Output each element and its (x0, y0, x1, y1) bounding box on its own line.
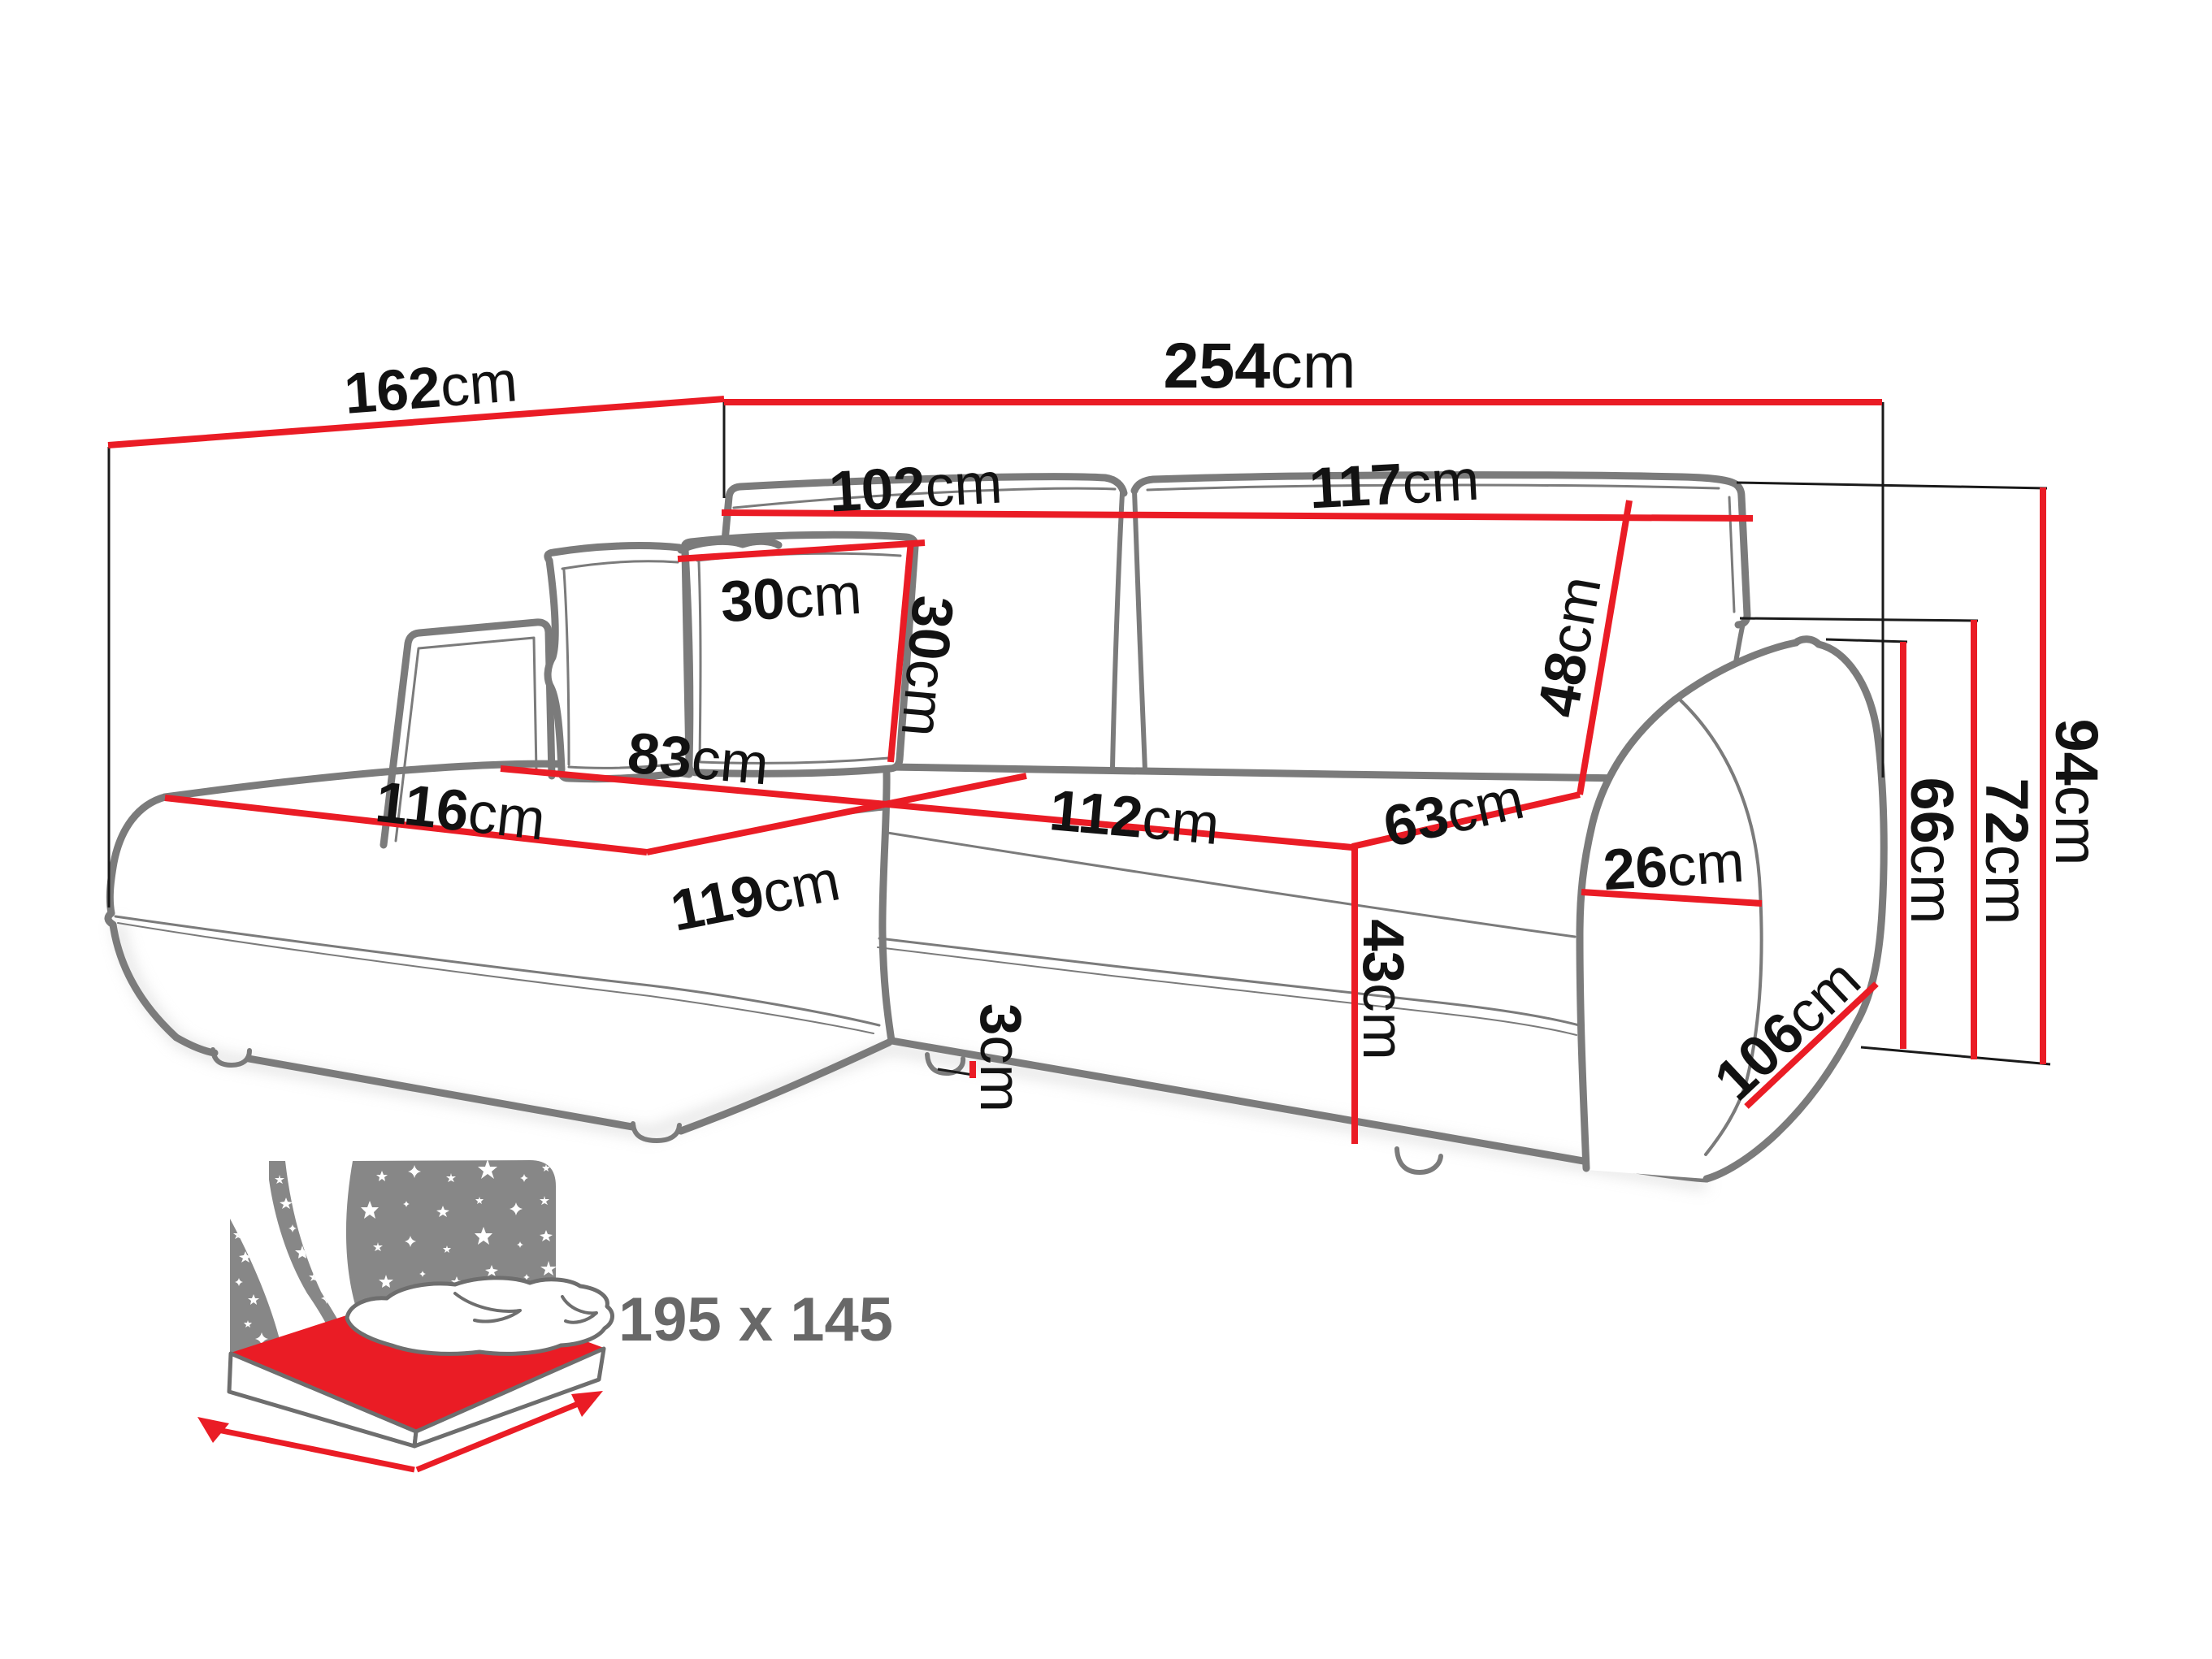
svg-text:26cm: 26cm (1601, 830, 1746, 903)
svg-text:102cm: 102cm (827, 452, 1004, 525)
svg-text:83cm: 83cm (625, 721, 771, 798)
svg-text:162cm: 162cm (342, 349, 519, 427)
svg-text:30cm: 30cm (718, 562, 863, 635)
svg-text:94cm: 94cm (2043, 719, 2110, 866)
svg-text:195 x 145: 195 x 145 (618, 1285, 893, 1354)
svg-text:117cm: 117cm (1308, 448, 1481, 522)
svg-text:3cm: 3cm (968, 1003, 1032, 1112)
svg-text:43cm: 43cm (1351, 919, 1415, 1060)
svg-text:30cm: 30cm (888, 593, 965, 739)
svg-text:66cm: 66cm (1898, 778, 1966, 925)
svg-text:72cm: 72cm (1973, 778, 2041, 925)
svg-text:254cm: 254cm (1163, 329, 1355, 401)
